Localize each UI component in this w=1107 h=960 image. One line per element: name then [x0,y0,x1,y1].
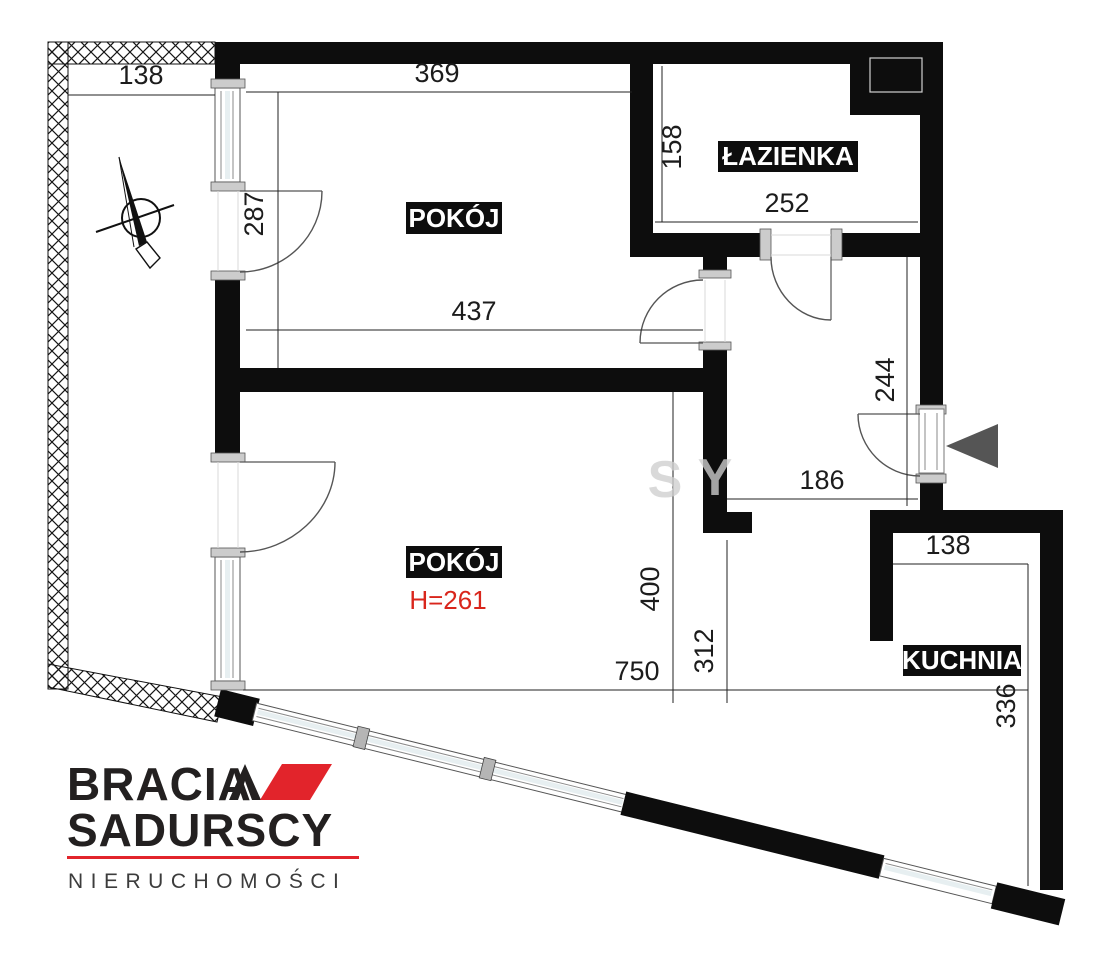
diagonal-wall-solid [620,792,884,879]
wall-right-below-entrance [920,483,943,511]
logo-divider [67,856,359,859]
logo-red-parallelogram-icon [260,764,332,800]
entrance-door-leaf-frame [919,409,944,473]
shaft-block [850,42,923,115]
wall-room1-bathroom [630,42,653,257]
logo-brand-bottom: SADURSCY [67,804,333,856]
wall-hall-foot [727,512,752,533]
dim-room2-height: 400 [635,566,665,611]
door-cap [699,342,731,350]
window-room2-glass [225,560,230,678]
door-cap [831,229,842,260]
wall-right-upper [920,42,943,405]
dim-kitchen-top-width: 138 [925,530,970,560]
dim-bathroom-width: 252 [764,188,809,218]
floor-plan-drawing: 138 369 287 158 252 437 244 186 400 312 … [0,0,1107,960]
door-cap [760,229,771,260]
door-cap [211,453,245,462]
balcony-wall-diagonal [48,664,223,722]
logo-tagline: NIERUCHOMOŚCI [68,869,346,893]
door-cap [211,548,245,557]
dim-balcony-width: 138 [118,60,163,90]
logo-brand-top: BRACIA [67,758,252,810]
dim-bottom-total-width: 750 [614,656,659,686]
door-arc-room2-balcony [240,462,335,552]
agency-logo: BRACIA SADURSCY NIERUCHOMOŚCI [67,758,359,893]
window-cap [211,182,245,191]
dim-room1-full-width: 437 [451,296,496,326]
watermark-letter: Y [698,449,733,507]
entrance-arrow-icon [946,424,998,468]
door-arc-bathroom [771,257,831,320]
wall-kitchen-right [1040,510,1063,890]
dim-passage-height: 312 [689,628,719,673]
north-arrow-tail [136,242,160,268]
door-cap [916,474,946,483]
room2-height-note: H=261 [409,585,486,615]
north-arrow-fan [119,157,141,244]
watermark: S Y [648,449,733,509]
wall-between-rooms [215,368,727,392]
window-room1-glass [225,91,230,179]
room2-label: POKÓJ [408,547,499,577]
wall-kitchen-left [870,510,893,641]
dim-room1-top-width: 369 [414,58,459,88]
door-arc-room1-hall [640,280,703,343]
wall-top [215,42,943,64]
dim-room1-height-left: 287 [239,191,269,236]
north-arrow-icon [96,157,174,268]
wall-bathroom-bottom-left [630,233,760,257]
wall-hall-stub [703,255,727,272]
door-cap [211,271,245,280]
balcony-hatched-walls [48,42,223,722]
door-arc-entrance [858,414,920,476]
north-arrow-needle [119,157,147,246]
dim-hall-height-right: 244 [870,357,900,402]
kitchen-label: KUCHNIA [902,645,1022,675]
door-cap [699,270,731,278]
bathroom-label: ŁAZIENKA [722,141,854,171]
dim-kitchen-height: 336 [991,683,1021,728]
window-cap [211,681,245,690]
floor-plan-page: 138 369 287 158 252 437 244 186 400 312 … [0,0,1107,960]
dim-hall-width-bottom: 186 [799,465,844,495]
watermark-letter: S [648,451,683,509]
window-cap [211,79,245,88]
balcony-wall-left [48,42,68,689]
dim-bathroom-height: 158 [657,124,687,169]
room1-label: POKÓJ [408,203,499,233]
wall-left-middle [215,280,240,455]
